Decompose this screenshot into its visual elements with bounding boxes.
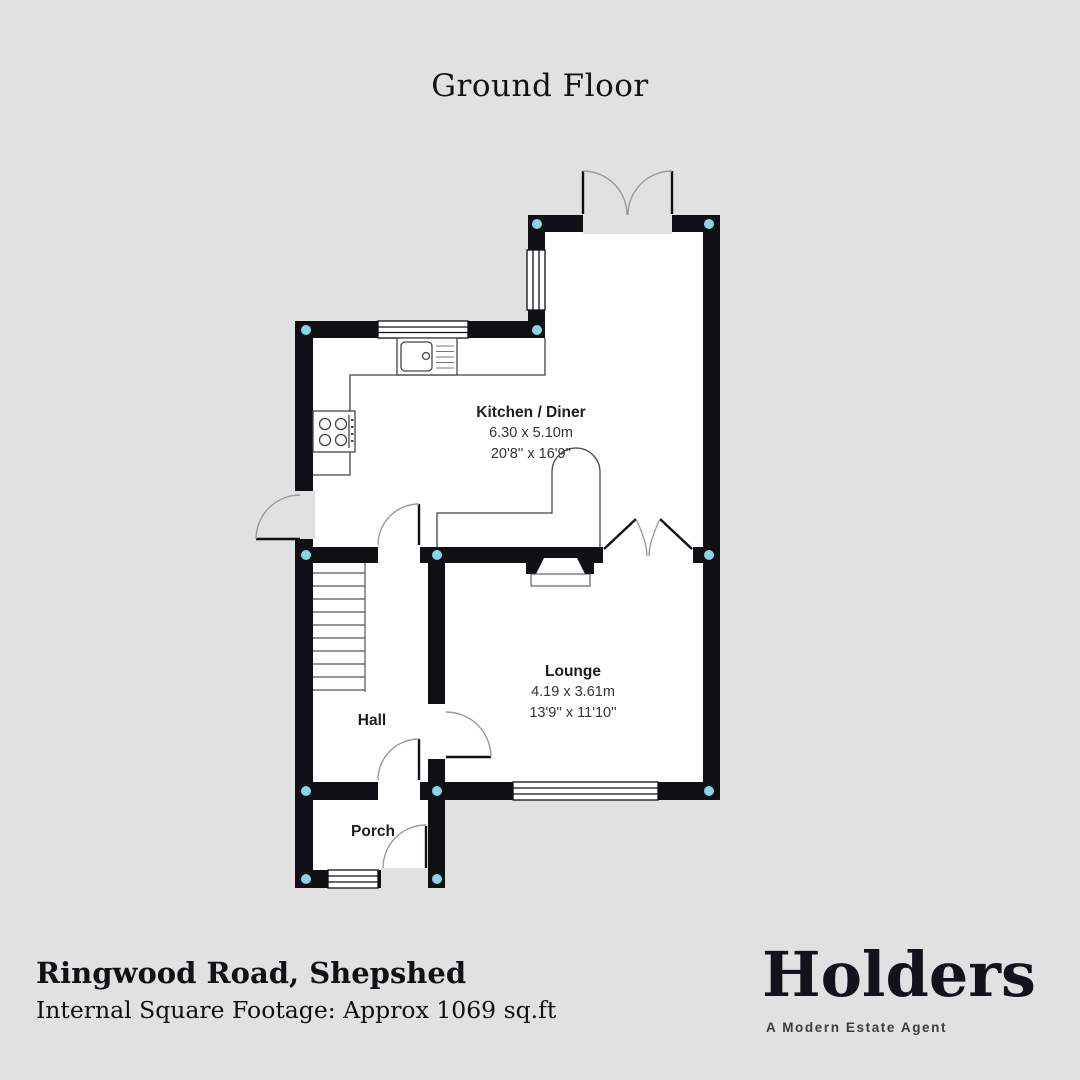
window-icon — [378, 321, 468, 338]
floor-plan-drawing — [0, 0, 1080, 1080]
cooker-hob-icon — [313, 411, 355, 452]
kitchen-sink-icon — [397, 338, 457, 375]
room-dims-metric: 4.19 x 3.61m — [529, 682, 616, 703]
brand-tagline: A Modern Estate Agent — [766, 1020, 947, 1035]
room-dims-imperial: 13'9'' x 11'10'' — [529, 703, 616, 724]
room-name: Kitchen / Diner — [476, 402, 585, 423]
window-icon — [527, 250, 545, 310]
fireplace-icon — [526, 556, 594, 586]
room-name: Hall — [358, 710, 386, 731]
room-label-lounge: Lounge 4.19 x 3.61m 13'9'' x 11'10'' — [529, 661, 616, 724]
property-address: Ringwood Road, Shepshed — [36, 956, 466, 990]
room-name: Lounge — [529, 661, 616, 682]
room-name: Porch — [351, 821, 395, 842]
room-label-kitchen: Kitchen / Diner 6.30 x 5.10m 20'8'' x 16… — [476, 402, 585, 465]
room-label-hall: Hall — [358, 710, 386, 731]
window-icon — [513, 782, 658, 800]
room-dims-metric: 6.30 x 5.10m — [476, 423, 585, 444]
brand-logo: Holders — [762, 938, 1036, 1011]
floorplan-page: Ground Floor — [0, 0, 1080, 1080]
room-dims-imperial: 20'8'' x 16'9'' — [476, 444, 585, 465]
window-icon — [328, 870, 378, 888]
square-footage: Internal Square Footage: Approx 1069 sq.… — [36, 996, 556, 1024]
room-label-porch: Porch — [351, 821, 395, 842]
